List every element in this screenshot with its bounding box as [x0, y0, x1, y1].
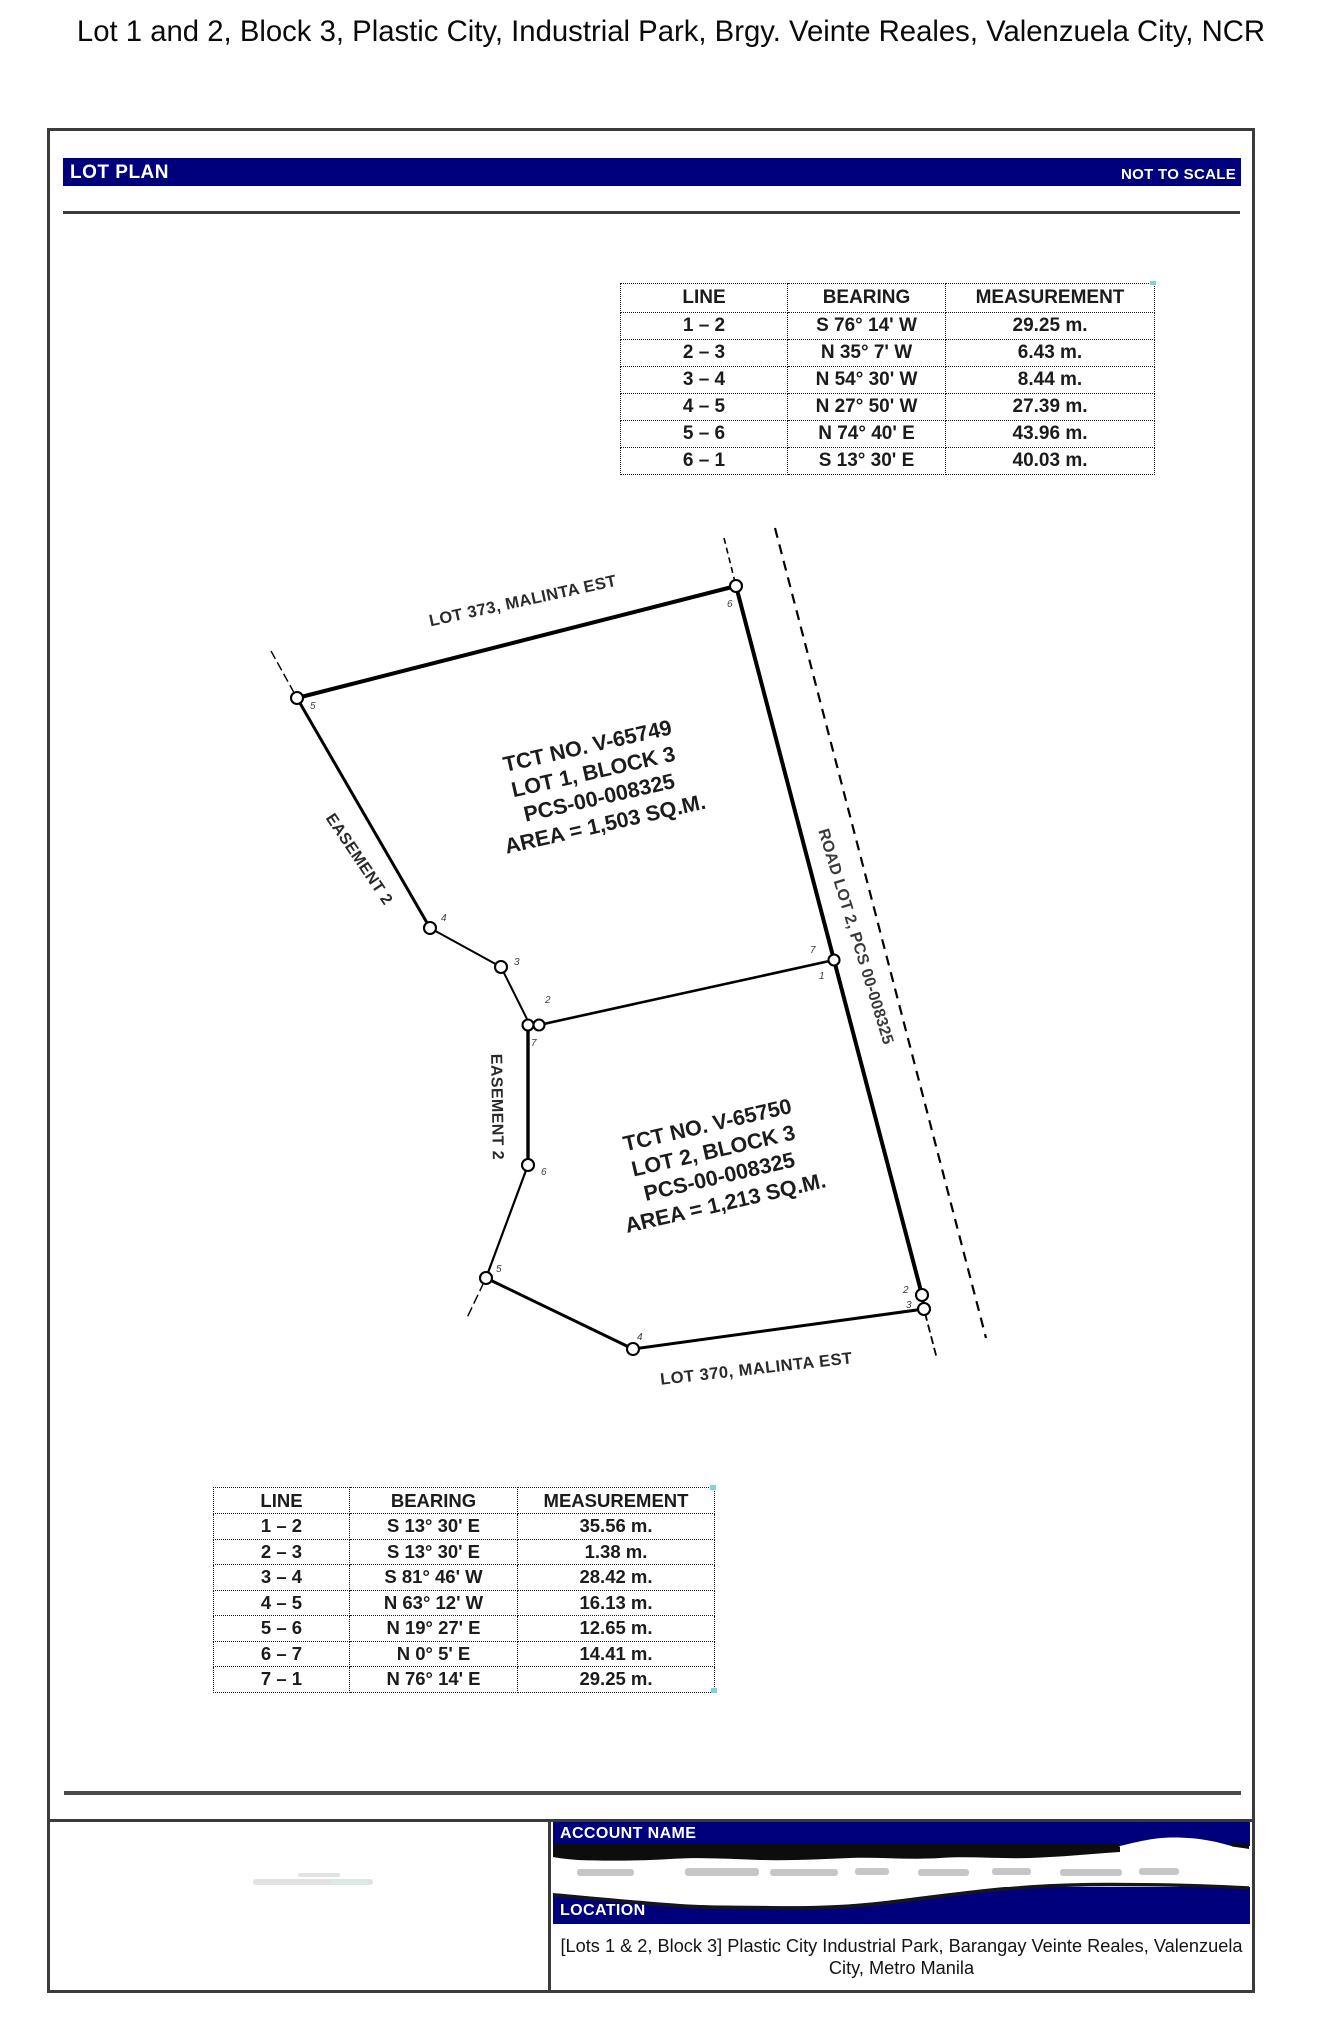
svg-text:7: 7: [810, 945, 816, 956]
svg-text:3: 3: [514, 957, 520, 968]
svg-text:4: 4: [441, 913, 447, 924]
svg-text:EASEMENT 2: EASEMENT 2: [487, 1054, 506, 1161]
svg-text:3: 3: [906, 1300, 912, 1311]
svg-text:2: 2: [544, 995, 551, 1006]
svg-text:1: 1: [819, 971, 825, 982]
svg-text:6: 6: [727, 599, 733, 610]
svg-text:5: 5: [496, 1264, 502, 1275]
svg-text:LOT 370, MALINTA EST: LOT 370, MALINTA EST: [659, 1349, 853, 1388]
svg-text:6: 6: [541, 1167, 547, 1178]
svg-text:EASEMENT 2: EASEMENT 2: [322, 811, 396, 909]
svg-text:4: 4: [637, 1332, 643, 1343]
svg-text:5: 5: [310, 701, 316, 712]
svg-text:2: 2: [902, 1285, 909, 1296]
svg-text:7: 7: [531, 1038, 537, 1049]
